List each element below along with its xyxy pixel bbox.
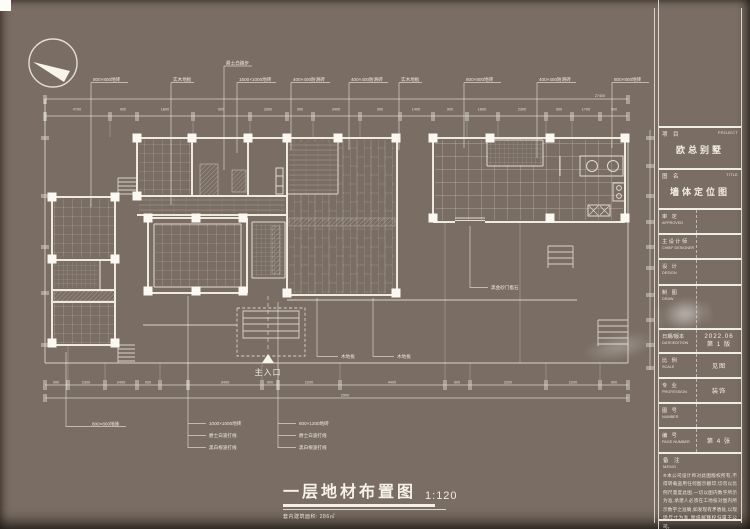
number-value <box>697 404 741 427</box>
callout-label: 800×800地砖 <box>466 76 494 83</box>
page-label-en: PAGE NUMBER <box>662 440 696 444</box>
callout-label: 黑白根波打线 <box>299 444 327 451</box>
titleblock-row-approved: 审 定 APPROVED <box>659 208 741 233</box>
design-label: 设 计 <box>662 263 696 270</box>
titleblock-row-title: 图 名 TITLE 墙体定位图 <box>659 168 741 208</box>
approved-label: 审 定 <box>662 213 696 220</box>
drawing-title-text: 一层地材布置图 <box>283 478 416 502</box>
number-label-en: NUMBER <box>662 415 696 419</box>
callout-label: 爵士白波打线 <box>299 432 327 439</box>
date-label-en: DATE/EDITION <box>662 341 696 345</box>
svg-text:900: 900 <box>556 108 562 112</box>
design-label-en: DESIGN <box>662 271 696 275</box>
callout-label: 实木地板 <box>173 76 192 83</box>
titleblock-row-chief: 主设计师 CHIEF DESIGNER <box>659 233 741 258</box>
svg-text:4700: 4700 <box>73 108 81 112</box>
svg-text:900: 900 <box>454 381 460 385</box>
callout-label: 400×400防滑砖 <box>293 76 325 83</box>
callout-label: 400×400防滑砖 <box>539 76 571 83</box>
chief-label: 主设计师 <box>662 238 696 245</box>
svg-text:900: 900 <box>297 108 303 112</box>
svg-text:1800: 1800 <box>161 108 169 112</box>
drawing-title: 一层地材布置图 1:120 套内建筑面积: 286㎡ <box>283 478 458 520</box>
svg-text:900: 900 <box>53 381 59 385</box>
svg-text:900: 900 <box>120 108 126 112</box>
svg-text:1700: 1700 <box>582 108 590 112</box>
memo-text: ※本公司设计师对此图版权所有,不得转载盗用任何图示翻印,切勿以比例尺量度此图,一… <box>659 469 741 529</box>
titleblock-row-draw: 制 图 DRAW <box>659 284 741 328</box>
project-label: 项 目 <box>662 130 681 138</box>
titleblock-row-date: 日期/版本 DATE/EDITION 2022.06第 1 版 <box>659 328 741 352</box>
svg-text:2300: 2300 <box>518 108 526 112</box>
sheet-title-value: 墙体定位图 <box>659 185 741 198</box>
date-label: 日期/版本 <box>662 333 696 340</box>
sheet-title-label-en: TITLE <box>726 172 738 180</box>
sheet-title-label: 图 名 <box>662 172 681 180</box>
drawing-subtitle: 套内建筑面积: 286㎡ <box>283 513 458 520</box>
title-underline-thick <box>283 504 435 507</box>
svg-text:4400: 4400 <box>388 381 396 385</box>
callout-label: 800×800地砖 <box>92 421 120 428</box>
number-label: 图 号 <box>662 407 696 414</box>
svg-text:27400: 27400 <box>595 94 606 98</box>
floor-plan-drawing: 27400 4700 900 1800 900 3300 900 3400 90… <box>0 0 660 529</box>
svg-text:3300: 3300 <box>264 108 272 112</box>
approved-label-en: APPROVED <box>662 221 696 225</box>
svg-text:900: 900 <box>447 108 453 112</box>
chief-signature-cell <box>697 235 741 258</box>
callout-label: 木地板 <box>397 353 411 360</box>
callout-label: 黑金砂门槛石 <box>491 284 519 291</box>
svg-text:900: 900 <box>377 108 383 112</box>
draw-signature-cell <box>697 286 741 328</box>
design-signature-cell <box>697 260 741 284</box>
svg-text:3400: 3400 <box>221 381 229 385</box>
callout-label: 木地板 <box>341 353 355 360</box>
title-underline-thin <box>283 509 446 510</box>
titleblock-row-profession: 专 业 PROFESSION 装饰 <box>659 377 741 402</box>
profession-label-en: PROFESSION <box>662 390 696 394</box>
titleblock-row-number: 图 号 NUMBER <box>659 402 741 427</box>
svg-text:900: 900 <box>145 381 151 385</box>
title-block: 项 目 PROJECT 欧总别墅 图 名 TITLE 墙体定位图 审 定 APP… <box>658 0 742 529</box>
entrance-label: 主入口 <box>255 367 282 377</box>
approved-signature-cell <box>697 210 741 233</box>
titleblock-row-design: 设 计 DESIGN <box>659 258 741 284</box>
scale-label-en: SCALE <box>662 365 696 369</box>
title-block-frame: 项 目 PROJECT 欧总别墅 图 名 TITLE 墙体定位图 审 定 APP… <box>658 0 741 529</box>
svg-text:900: 900 <box>611 381 617 385</box>
titleblock-row-project: 项 目 PROJECT 欧总别墅 <box>659 126 741 168</box>
svg-text:1800: 1800 <box>478 108 486 112</box>
main-entrance-marker: 主入口 <box>255 354 282 377</box>
project-value: 欧总别墅 <box>659 143 741 156</box>
callout-label: 1500×1000地砖 <box>239 76 272 83</box>
profession-label: 专 业 <box>662 382 696 389</box>
svg-text:2400: 2400 <box>117 381 125 385</box>
callout-label: 800×800地砖 <box>93 76 121 83</box>
scale-value: 见图 <box>697 354 741 377</box>
chief-label-en: CHIEF DESIGNER <box>662 246 696 250</box>
svg-text:900: 900 <box>267 381 273 385</box>
sheet-corner-mark <box>0 0 11 11</box>
drawing-scale: 1:120 <box>425 490 458 502</box>
titleblock-row-scale: 比 例 SCALE 见图 <box>659 352 741 377</box>
draw-label: 制 图 <box>662 289 696 296</box>
draw-label-en: DRAW <box>662 297 696 301</box>
svg-text:2200: 2200 <box>569 381 577 385</box>
callout-label: 400×400防滑砖 <box>351 76 383 83</box>
svg-text:3400: 3400 <box>332 108 340 112</box>
date-value: 2022.06第 1 版 <box>697 330 741 352</box>
callout-label: 800×800地砖 <box>614 76 642 83</box>
north-arrow-icon <box>29 39 77 87</box>
svg-text:2900: 2900 <box>341 394 349 398</box>
callout-label: 爵士白踏步 <box>226 60 249 67</box>
callout-label: 600×1200地砖 <box>299 420 329 427</box>
svg-text:1400: 1400 <box>412 108 420 112</box>
svg-text:3200: 3200 <box>504 381 512 385</box>
svg-text:900: 900 <box>218 108 224 112</box>
svg-text:2200: 2200 <box>305 381 313 385</box>
callout-label: 黑白根波打线 <box>209 444 237 451</box>
drawing-sheet: 27400 4700 900 1800 900 3300 900 3400 90… <box>0 0 750 529</box>
page-value: 第 4 张 <box>697 429 741 452</box>
project-label-en: PROJECT <box>718 130 738 138</box>
page-label: 编 号 <box>662 432 696 439</box>
callout-label: 实木地板 <box>401 76 420 83</box>
scale-label: 比 例 <box>662 357 696 364</box>
titleblock-row-memo: 备 注 MEMO ※本公司设计师对此图版权所有,不得转载盗用任何图示翻印,切勿以… <box>659 452 741 521</box>
titleblock-row-page: 编 号 PAGE NUMBER 第 4 张 <box>659 427 741 452</box>
callout-label: 1000×1000地砖 <box>209 420 242 427</box>
svg-text:2300: 2300 <box>82 381 90 385</box>
memo-label: 备 注 <box>663 456 738 464</box>
profession-value: 装饰 <box>697 379 741 402</box>
callout-label: 爵士白波打线 <box>209 432 237 439</box>
